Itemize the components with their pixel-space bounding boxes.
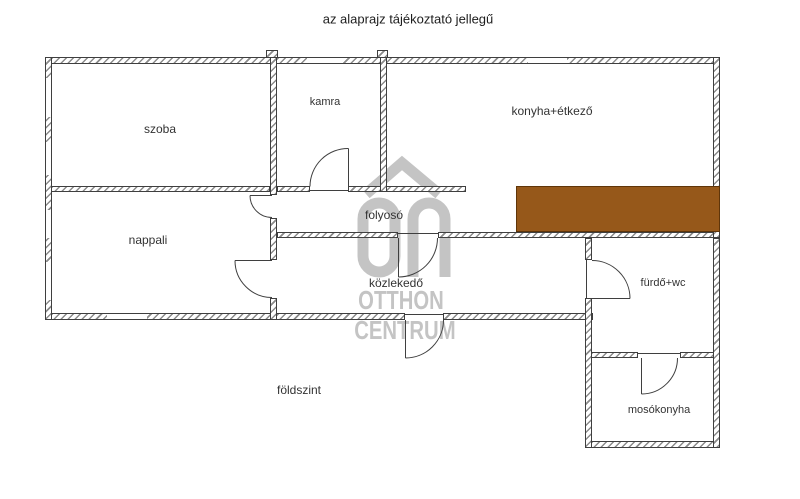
room-label-konyha: konyha+étkező (511, 104, 592, 118)
door-arc-mosokonyha (642, 358, 678, 394)
room-label-kozlekedo: közlekedő (369, 276, 423, 290)
doors-overlay (0, 0, 800, 499)
room-label-szoba: szoba (144, 122, 176, 136)
room-label-folyoso: folyosó (365, 208, 403, 222)
door-arc-kozlekedo (399, 238, 438, 277)
room-label-furdo: fürdő+wc (641, 277, 686, 289)
plan-disclaimer-title: az alaprajz tájékoztató jellegű (323, 12, 494, 27)
room-label-kamra: kamra (310, 96, 341, 108)
door-arc-kamra (310, 148, 349, 186)
door-arc-entrance (406, 320, 444, 358)
door-arc-nappali-lower (235, 261, 272, 298)
room-label-mosokonyha: mosókonyha (628, 404, 690, 416)
floorplan-canvas: az alaprajz tájékoztató jellegű OTTHON C… (0, 0, 800, 499)
room-label-nappali: nappali (129, 233, 168, 247)
door-arc-furdo (592, 261, 630, 299)
door-arc-nappali-upper (250, 196, 272, 218)
floor-label: földszint (277, 383, 321, 397)
